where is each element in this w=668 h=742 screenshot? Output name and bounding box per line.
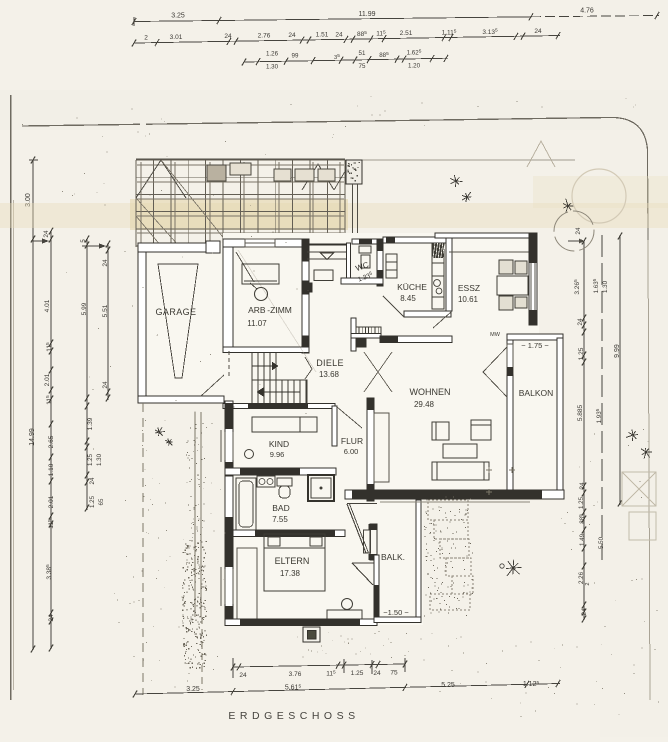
svg-text:8.45: 8.45 bbox=[400, 294, 416, 303]
svg-text:5.885: 5.885 bbox=[577, 404, 584, 421]
svg-text:3.25: 3.25 bbox=[171, 13, 185, 20]
svg-text:4.01: 4.01 bbox=[44, 299, 51, 312]
svg-text:1.30: 1.30 bbox=[602, 280, 609, 293]
svg-text:3.01: 3.01 bbox=[170, 34, 183, 41]
svg-text:99: 99 bbox=[292, 53, 299, 60]
svg-text:1.39: 1.39 bbox=[87, 417, 94, 430]
svg-text:ELTERN: ELTERN bbox=[275, 556, 310, 566]
svg-text:BALKON: BALKON bbox=[519, 388, 554, 398]
svg-text:9.99: 9.99 bbox=[614, 344, 621, 358]
svg-text:2: 2 bbox=[585, 582, 591, 585]
svg-text:− 1.75 −: − 1.75 − bbox=[521, 341, 549, 350]
svg-text:1.30: 1.30 bbox=[266, 64, 279, 71]
svg-text:2.51: 2.51 bbox=[400, 30, 413, 37]
svg-text:9.96: 9.96 bbox=[270, 450, 285, 459]
svg-text:4.76: 4.76 bbox=[580, 8, 594, 15]
svg-text:1.26: 1.26 bbox=[266, 51, 279, 58]
svg-text:24: 24 bbox=[89, 477, 96, 484]
svg-text:FLUR: FLUR bbox=[341, 436, 363, 446]
svg-text:7.55: 7.55 bbox=[272, 515, 288, 524]
svg-text:1.25: 1.25 bbox=[89, 495, 96, 508]
svg-text:2.26: 2.26 bbox=[578, 571, 585, 584]
svg-text:GARAGE: GARAGE bbox=[156, 307, 197, 317]
svg-text:ESSZ: ESSZ bbox=[458, 283, 480, 293]
svg-text:75: 75 bbox=[390, 670, 398, 677]
svg-text:1.25: 1.25 bbox=[351, 670, 364, 677]
svg-text:24: 24 bbox=[575, 227, 582, 235]
svg-text:KÜCHE: KÜCHE bbox=[397, 282, 427, 292]
svg-text:17.38: 17.38 bbox=[280, 569, 301, 578]
svg-text:2.65: 2.65 bbox=[48, 435, 55, 448]
svg-text:5.25: 5.25 bbox=[441, 682, 455, 689]
svg-text:5.50: 5.50 bbox=[598, 536, 605, 549]
svg-text:ARB -ZIMM: ARB -ZIMM bbox=[248, 305, 292, 315]
svg-text:10.61: 10.61 bbox=[458, 295, 479, 304]
svg-text:24: 24 bbox=[239, 672, 247, 679]
svg-text:65: 65 bbox=[98, 498, 105, 505]
svg-text:2.76: 2.76 bbox=[258, 33, 271, 40]
svg-text:11.07: 11.07 bbox=[247, 319, 267, 328]
svg-text:3.25: 3.25 bbox=[186, 686, 200, 693]
svg-text:1.10: 1.10 bbox=[48, 463, 55, 476]
svg-text:2.01: 2.01 bbox=[48, 495, 55, 508]
svg-text:2.01: 2.01 bbox=[44, 373, 51, 386]
svg-text:24: 24 bbox=[288, 32, 296, 39]
svg-text:5.99: 5.99 bbox=[81, 302, 88, 315]
svg-text:1.20: 1.20 bbox=[408, 63, 421, 70]
svg-text:51: 51 bbox=[359, 50, 366, 57]
svg-text:−1.50 −: −1.50 − bbox=[383, 608, 409, 617]
svg-text:75: 75 bbox=[359, 63, 366, 70]
svg-text:24: 24 bbox=[534, 28, 542, 35]
svg-text:ERDGESCHOSS: ERDGESCHOSS bbox=[228, 710, 359, 722]
svg-text:24: 24 bbox=[102, 381, 109, 389]
svg-text:1.25: 1.25 bbox=[578, 496, 585, 509]
svg-text:24: 24 bbox=[373, 670, 381, 677]
svg-text:DIELE: DIELE bbox=[316, 358, 344, 368]
svg-text:2: 2 bbox=[144, 35, 148, 42]
svg-text:1.49: 1.49 bbox=[579, 533, 586, 546]
svg-text:1.51: 1.51 bbox=[316, 32, 329, 39]
svg-text:1.30: 1.30 bbox=[96, 453, 103, 466]
svg-text:24: 24 bbox=[577, 318, 584, 326]
svg-text:11.99: 11.99 bbox=[359, 11, 376, 18]
svg-text:24: 24 bbox=[224, 33, 232, 40]
svg-text:BAD: BAD bbox=[272, 503, 289, 513]
svg-text:13.68: 13.68 bbox=[319, 370, 340, 379]
svg-text:24: 24 bbox=[581, 608, 588, 616]
svg-text:3.76: 3.76 bbox=[289, 671, 302, 678]
svg-text:24: 24 bbox=[102, 259, 109, 267]
svg-text:BALK.: BALK. bbox=[381, 552, 405, 562]
svg-text:KIND: KIND bbox=[269, 439, 289, 449]
svg-text:24: 24 bbox=[48, 614, 55, 622]
svg-text:6.00: 6.00 bbox=[344, 447, 359, 456]
svg-text:1.25: 1.25 bbox=[578, 347, 585, 360]
svg-text:5.51: 5.51 bbox=[102, 304, 109, 317]
svg-text:MW: MW bbox=[490, 332, 501, 338]
svg-text:24: 24 bbox=[579, 482, 586, 490]
svg-text:24: 24 bbox=[335, 31, 343, 38]
svg-text:29.48: 29.48 bbox=[414, 400, 435, 409]
svg-text:24: 24 bbox=[43, 230, 50, 238]
svg-text:1.25: 1.25 bbox=[87, 453, 94, 466]
svg-text:WOHNEN: WOHNEN bbox=[410, 387, 451, 397]
svg-text:14.99: 14.99 bbox=[29, 428, 36, 446]
